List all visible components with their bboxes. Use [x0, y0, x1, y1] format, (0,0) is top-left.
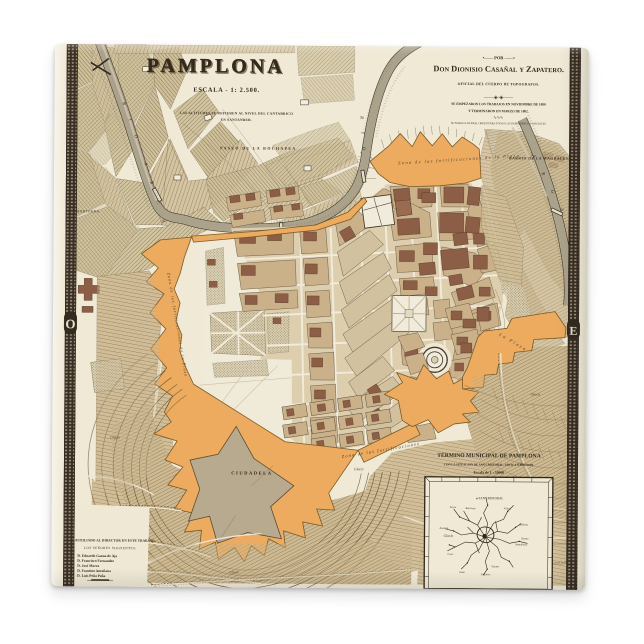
svg-text:Artica: Artica: [450, 506, 457, 509]
svg-text:D. Luis Peña Peña: D. Luis Peña Peña: [77, 574, 105, 578]
svg-text:Ansoain: Ansoain: [440, 527, 449, 530]
svg-text:PASEO DE LA ROCHAPEA: PASEO DE LA ROCHAPEA: [220, 146, 296, 151]
svg-text:D. José Marco: D. José Marco: [77, 564, 99, 568]
svg-text:E: E: [569, 324, 577, 338]
svg-text:D. Francisco Fernandez: D. Francisco Fernandez: [77, 559, 114, 563]
svg-text:▴ SAN CRISTOBAL: ▴ SAN CRISTOBAL: [476, 496, 503, 500]
svg-text:•—— POR ——•: •—— POR ——•: [483, 55, 516, 60]
svg-text:Galar: Galar: [459, 571, 465, 574]
svg-text:Tajonar: Tajonar: [491, 565, 499, 568]
svg-text:——◈⋅◈——: ——◈⋅◈——: [483, 95, 514, 101]
svg-text:HAN AUXILIADO AL DIRECTOR EN E: HAN AUXILIADO AL DIRECTOR EN ESTE TRABAJ…: [66, 538, 155, 543]
svg-text:ESCALA - 1: 2.500.: ESCALA - 1: 2.500.: [193, 87, 259, 94]
svg-text:Glacis: Glacis: [443, 534, 453, 538]
svg-text:Berriozar: Berriozar: [466, 507, 476, 510]
svg-text:PAMPLONA: PAMPLONA: [147, 55, 285, 78]
svg-text:Villava: Villava: [504, 507, 512, 510]
svg-text:EN SANTANDER.: EN SANTANDER.: [221, 118, 252, 122]
svg-text:Huarte: Huarte: [521, 537, 529, 540]
svg-text:O: O: [65, 316, 75, 331]
svg-text:LOS SEÑORES SIGUIENTES:: LOS SEÑORES SIGUIENTES:: [84, 545, 137, 550]
svg-text:Glacis: Glacis: [354, 467, 364, 471]
svg-text:Esquiroz: Esquiroz: [481, 573, 491, 576]
svg-text:Glacis: Glacis: [530, 392, 540, 396]
svg-text:Mendillorri: Mendillorri: [515, 543, 527, 546]
svg-text:Glacis: Glacis: [518, 462, 528, 466]
svg-text:Glacis: Glacis: [110, 436, 120, 440]
svg-text:D. Eduardo Gaona de Aja: D. Eduardo Gaona de Aja: [77, 554, 117, 558]
svg-text:CIUDADELA: CIUDADELA: [231, 470, 272, 475]
svg-text:Burlada: Burlada: [520, 523, 529, 526]
svg-text:Escala de 1 : 50000: Escala de 1 : 50000: [474, 471, 505, 475]
svg-text:OFICIAL DEL CUERPO DE TOPOGRAF: OFICIAL DEL CUERPO DE TOPOGRAFOS.: [458, 82, 540, 87]
svg-text:∿∿∿: ∿∿∿: [493, 115, 503, 120]
svg-text:Cizur: Cizur: [447, 553, 453, 556]
svg-text:D. Faustino Antoñana: D. Faustino Antoñana: [77, 569, 111, 573]
svg-text:LAS ALTITUDES SE REFIEREN AL N: LAS ALTITUDES SE REFIEREN AL NIVEL DEL C…: [180, 111, 293, 116]
svg-text:SE EMPEZARON LOS TRABAJOS EN N: SE EMPEZARON LOS TRABAJOS EN NOVIEMBRE D…: [451, 102, 546, 107]
svg-text:Y TERMINARON EN MARZO DE 1882.: Y TERMINARON EN MARZO DE 1882.: [468, 109, 529, 113]
svg-text:CHORTORRA: CHORTORRA: [74, 209, 100, 213]
svg-text:Glacis: Glacis: [229, 570, 239, 574]
